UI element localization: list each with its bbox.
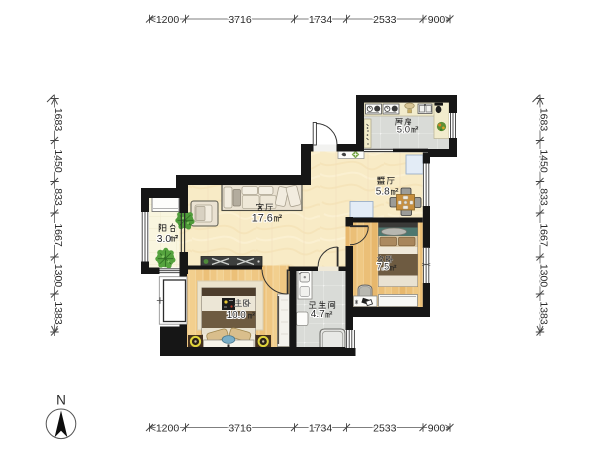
svg-text:1383: 1383 — [52, 301, 64, 325]
svg-text:17.6: 17.6 — [252, 212, 273, 224]
svg-text:1300: 1300 — [52, 264, 64, 288]
svg-text:2533: 2533 — [373, 14, 397, 26]
svg-text:900: 900 — [428, 422, 446, 434]
svg-text:1450: 1450 — [52, 149, 64, 173]
svg-text:10.0: 10.0 — [227, 310, 247, 321]
svg-text:7.5: 7.5 — [377, 262, 390, 272]
svg-text:1200: 1200 — [156, 422, 180, 434]
svg-text:N: N — [56, 393, 66, 408]
svg-text:1667: 1667 — [537, 223, 549, 247]
svg-text:3.0: 3.0 — [157, 234, 172, 245]
svg-text:900: 900 — [428, 14, 446, 26]
svg-text:4.7: 4.7 — [311, 309, 325, 320]
svg-text:833: 833 — [537, 188, 549, 206]
svg-text:3716: 3716 — [228, 422, 252, 434]
svg-text:5.0: 5.0 — [397, 125, 410, 136]
svg-text:1734: 1734 — [309, 14, 333, 26]
svg-text:1683: 1683 — [537, 108, 549, 132]
svg-text:3716: 3716 — [228, 14, 252, 26]
svg-text:1383: 1383 — [537, 301, 549, 325]
svg-text:1300: 1300 — [537, 264, 549, 288]
svg-text:833: 833 — [52, 188, 64, 206]
svg-text:1734: 1734 — [309, 422, 333, 434]
svg-text:2533: 2533 — [373, 422, 397, 434]
svg-text:1667: 1667 — [52, 223, 64, 247]
svg-text:1683: 1683 — [52, 108, 64, 132]
svg-text:1450: 1450 — [537, 149, 549, 173]
svg-text:5.8: 5.8 — [376, 186, 390, 197]
svg-text:1200: 1200 — [156, 14, 180, 26]
